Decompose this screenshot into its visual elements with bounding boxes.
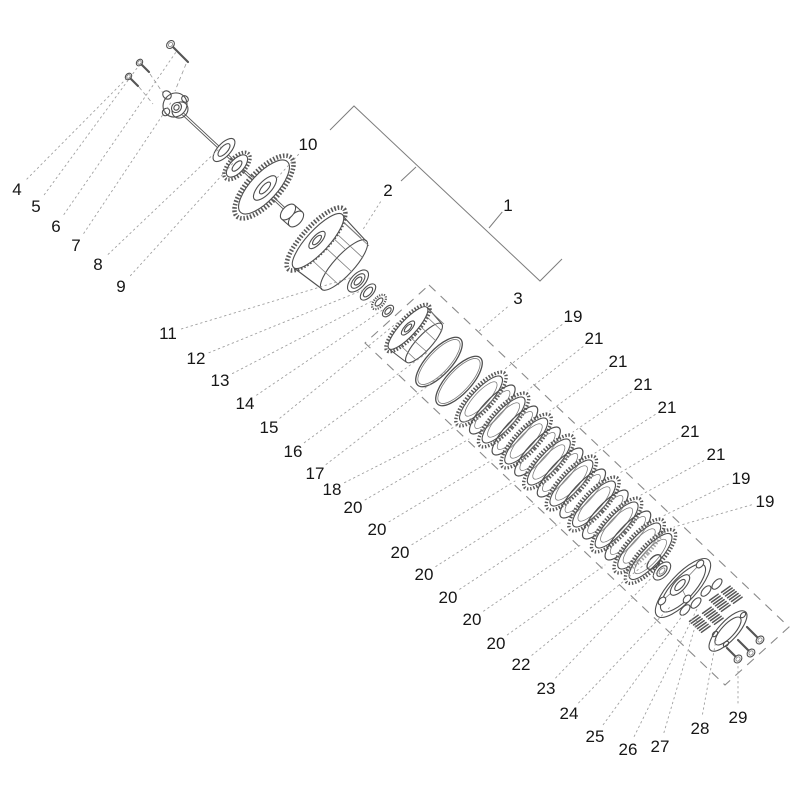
part-clutch-spring	[690, 615, 711, 632]
callout-4: 4	[12, 180, 21, 199]
callout-11: 11	[159, 324, 177, 343]
callout-29: 29	[729, 708, 748, 727]
callout-3: 3	[513, 289, 522, 308]
callout-8: 8	[93, 255, 102, 274]
callout-21: 21	[634, 375, 653, 394]
callout-20: 20	[487, 634, 506, 653]
callout-21: 21	[609, 352, 628, 371]
part-bushing-10	[278, 201, 307, 229]
leader-line-21	[641, 461, 704, 495]
part-ring-16	[408, 330, 469, 393]
leader-line-21	[595, 415, 655, 453]
part-screw-long	[165, 39, 188, 62]
leader-line-18	[344, 418, 472, 483]
callout-6: 6	[51, 217, 60, 236]
callout-1: 1	[503, 196, 512, 215]
callout-5: 5	[31, 197, 40, 216]
callout-18: 18	[323, 480, 342, 499]
callout-10: 10	[299, 135, 318, 154]
callout-15: 15	[260, 418, 279, 437]
callout-13: 13	[211, 371, 230, 390]
leader-line-27	[664, 620, 697, 733]
leader-line-16	[304, 352, 428, 443]
callout-20: 20	[439, 588, 458, 607]
leader-line-20	[436, 502, 537, 566]
callout-27: 27	[651, 737, 670, 756]
callout-12: 12	[187, 349, 206, 368]
callout-16: 16	[284, 442, 303, 461]
part-pump-housing	[158, 88, 192, 122]
leader-line-3	[478, 307, 507, 332]
callout-9: 9	[116, 277, 125, 296]
callout-21: 21	[585, 329, 604, 348]
leader-line-20	[484, 544, 582, 611]
part-screw-small-1	[135, 58, 149, 72]
leader-line-20	[460, 523, 560, 589]
leader-line-20	[389, 460, 492, 522]
leader-line-21	[528, 347, 583, 390]
callout-20: 20	[368, 520, 387, 539]
group-bracket-line	[330, 106, 562, 281]
leader-line-21	[573, 392, 631, 432]
exploded-diagram-svg: 1234567891011121314151617181921212121212…	[0, 0, 800, 800]
callout-21: 21	[681, 422, 700, 441]
leader-line-20	[412, 481, 515, 545]
leader-line-19	[505, 325, 562, 369]
leader-line-14	[257, 309, 384, 395]
leader-line-6	[64, 52, 176, 214]
callout-14: 14	[236, 394, 255, 413]
leader-line-5	[44, 64, 140, 195]
leader-line-4	[27, 77, 128, 179]
leader-line-7	[84, 101, 172, 233]
callout-21: 21	[658, 398, 677, 417]
callout-20: 20	[463, 610, 482, 629]
leader-line-21	[550, 369, 607, 411]
callout-19: 19	[564, 307, 583, 326]
leader-line-19	[674, 505, 752, 527]
leader-line-21	[618, 438, 678, 474]
callout-26: 26	[619, 740, 638, 759]
leader-line-26	[634, 607, 698, 736]
callout-23: 23	[537, 679, 556, 698]
callout-19: 19	[732, 469, 751, 488]
leader-line-11	[181, 278, 350, 329]
callout-20: 20	[344, 498, 363, 517]
leader-line-2	[362, 202, 381, 231]
bracket-tick	[401, 167, 416, 181]
callout-25: 25	[586, 727, 605, 746]
leader-line-20	[507, 565, 605, 635]
leader-line-12	[209, 290, 363, 353]
callout-7: 7	[71, 236, 80, 255]
leader-line-13	[232, 300, 374, 374]
callout-20: 20	[391, 543, 410, 562]
callout-19: 19	[756, 492, 775, 511]
leader-line-17	[326, 371, 447, 464]
leader-line-25	[603, 612, 685, 725]
exploded-diagram-page: 1234567891011121314151617181921212121212…	[0, 0, 800, 800]
callout-20: 20	[415, 565, 434, 584]
callout-22: 22	[512, 655, 531, 674]
callout-28: 28	[691, 719, 710, 738]
leader-line-19	[663, 484, 728, 516]
part-clutch-spring	[722, 586, 743, 603]
callout-24: 24	[560, 704, 579, 723]
leader-line-1	[489, 212, 502, 228]
leader-line-20	[365, 439, 469, 500]
callout-21: 21	[707, 445, 726, 464]
callout-2: 2	[383, 181, 392, 200]
leader-line-15	[280, 322, 398, 418]
